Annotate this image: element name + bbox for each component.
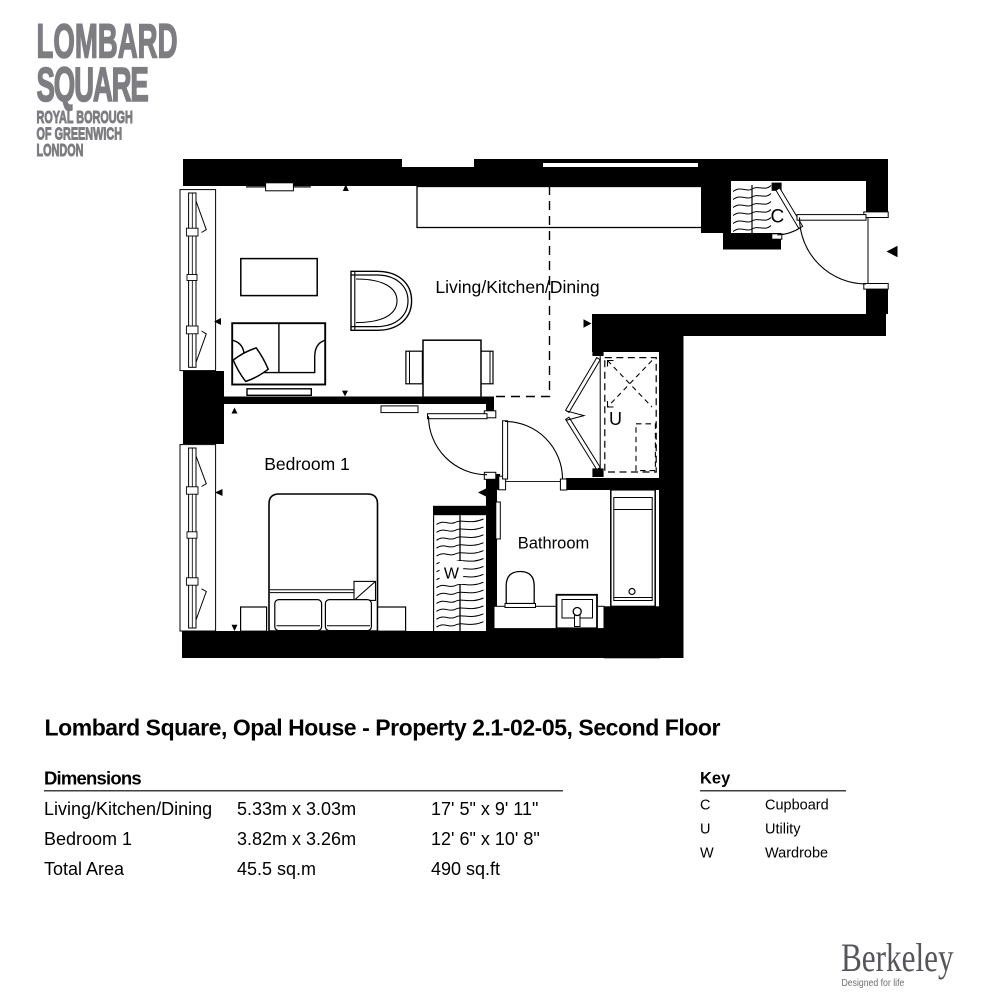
svg-text:17' 5" x 9' 11": 17' 5" x 9' 11" <box>431 799 538 819</box>
svg-text:LONDON: LONDON <box>37 141 84 160</box>
svg-text:U: U <box>609 409 622 429</box>
svg-text:Living/Kitchen/Dining: Living/Kitchen/Dining <box>44 799 212 819</box>
svg-text:Lombard Square, Opal House - P: Lombard Square, Opal House - Property 2.… <box>45 715 721 741</box>
svg-text:Total Area: Total Area <box>44 859 125 879</box>
svg-text:Bedroom 1: Bedroom 1 <box>44 829 132 849</box>
svg-text:W: W <box>444 566 460 583</box>
svg-text:Dimensions: Dimensions <box>44 768 141 789</box>
svg-text:Bedroom 1: Bedroom 1 <box>264 454 350 474</box>
svg-text:Berkeley: Berkeley <box>841 935 954 980</box>
svg-text:490 sq.ft: 490 sq.ft <box>431 859 500 879</box>
svg-text:Designed for life: Designed for life <box>842 977 905 989</box>
svg-text:C: C <box>700 798 710 814</box>
svg-text:Cupboard: Cupboard <box>765 798 829 814</box>
svg-text:Living/Kitchen/Dining: Living/Kitchen/Dining <box>435 277 599 297</box>
svg-text:Bathroom: Bathroom <box>518 535 590 553</box>
svg-text:5.33m x 3.03m: 5.33m x 3.03m <box>237 799 356 819</box>
svg-text:Key: Key <box>700 770 731 788</box>
svg-text:Utility: Utility <box>765 822 801 838</box>
svg-text:12' 6" x 10' 8": 12' 6" x 10' 8" <box>431 829 540 849</box>
svg-text:SQUARE: SQUARE <box>37 59 149 112</box>
svg-text:U: U <box>700 822 710 838</box>
svg-text:45.5 sq.m: 45.5 sq.m <box>237 859 316 879</box>
svg-text:3.82m x 3.26m: 3.82m x 3.26m <box>237 829 356 849</box>
svg-text:C: C <box>771 207 785 228</box>
svg-text:Wardrobe: Wardrobe <box>765 846 828 862</box>
svg-text:W: W <box>700 846 714 862</box>
